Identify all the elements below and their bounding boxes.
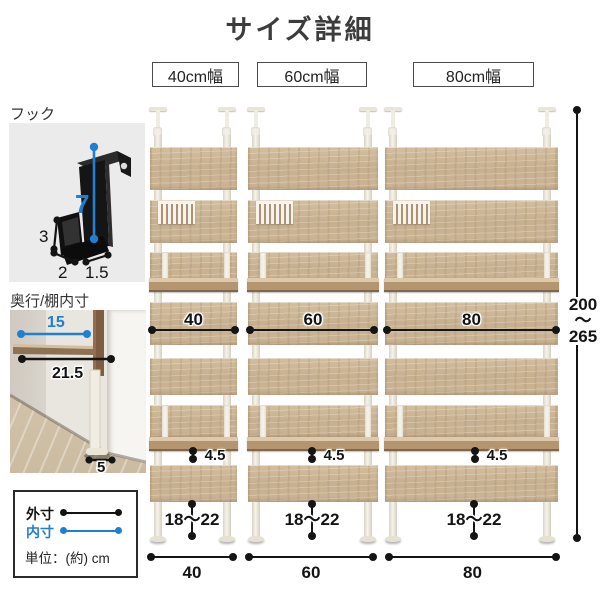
depth-inner-label: 15 — [47, 314, 65, 331]
wood-panel — [385, 465, 558, 502]
pole-foot — [219, 536, 235, 542]
depth-foot-label: 5 — [97, 459, 105, 473]
header-40cm: 40cm幅 — [152, 62, 239, 87]
inner-width-line — [248, 329, 376, 331]
hook-drawing: 7 3 2 1.5 — [9, 123, 145, 282]
depth-outer-label: 21.5 — [52, 365, 83, 382]
wood-panel — [248, 147, 378, 190]
outer-width-line — [149, 556, 235, 558]
header-60cm: 60cm幅 — [257, 62, 367, 87]
shelf-rail — [397, 405, 403, 438]
inner-width-label: 60 — [248, 311, 378, 328]
shelf-back-panel — [248, 405, 378, 437]
size-detail-diagram: サイズ詳細 40cm幅 60cm幅 80cm幅 フック 7 3 2 — [0, 0, 600, 600]
header-40cm-label: 40cm幅 — [168, 63, 223, 87]
wood-panel — [150, 147, 237, 190]
shelf-board — [247, 278, 379, 292]
outer-width-label: 40 — [149, 564, 235, 581]
depth-overlay: 15 21.5 5 — [10, 310, 146, 473]
wood-panel — [248, 358, 378, 395]
pole-foot — [539, 536, 555, 542]
header-80cm: 80cm幅 — [413, 62, 534, 87]
shelf-back-panel — [385, 405, 558, 437]
shelf-rail — [365, 405, 371, 438]
wood-panel — [385, 358, 558, 395]
shelf-gap-label: 4.5 — [201, 448, 229, 463]
legend-inner-line — [61, 530, 121, 532]
height-max: 265 — [560, 329, 600, 345]
shelf-gap-label: 4.5 — [483, 448, 511, 463]
wood-panel — [248, 465, 378, 502]
shelf-back-panel — [248, 252, 378, 281]
hook-width-label: 1.5 — [85, 263, 109, 282]
floor-gap-label: 18〜22 — [282, 511, 342, 528]
shelf-gap-label: 4.5 — [320, 448, 348, 463]
legend-unit-note: 単位：(約) cm — [25, 547, 133, 567]
pole-foot — [360, 536, 376, 542]
pole-foot — [150, 536, 166, 542]
legend-outer-line — [61, 512, 121, 514]
shelf-rail — [260, 405, 266, 438]
shelf-gap-line — [192, 449, 194, 461]
depth-section-label: 奥行/棚内寸 — [10, 290, 89, 311]
shelf-rail — [162, 405, 168, 438]
floor-gap-label: 18〜22 — [444, 511, 504, 528]
outer-width-line — [247, 556, 375, 558]
inner-width-label: 80 — [385, 311, 558, 328]
shelf-board — [149, 278, 238, 292]
outer-width-label: 60 — [247, 564, 375, 581]
pole-foot — [385, 536, 401, 542]
wood-panel — [150, 465, 237, 502]
shelf-back-panel — [385, 252, 558, 281]
floor-gap-label: 18〜22 — [162, 511, 222, 528]
pole-foot — [248, 536, 264, 542]
depth-photo: 15 21.5 5 — [10, 310, 146, 473]
shelf-gap-line — [474, 449, 476, 461]
legend-outer-label: 外寸 — [26, 504, 54, 524]
header-80cm-label: 80cm幅 — [446, 63, 501, 87]
hook-side-label: 3 — [39, 227, 48, 246]
outer-width-line — [387, 556, 558, 558]
outer-width-label: 80 — [387, 564, 558, 581]
height-range-label: 200 〜 265 — [560, 297, 600, 345]
hook-section-label: フック — [10, 103, 55, 124]
legend-inner-label: 内寸 — [26, 522, 54, 542]
inner-width-line — [385, 329, 558, 331]
shelf-rail — [544, 405, 550, 438]
wood-panel — [150, 358, 237, 395]
page-title: サイズ詳細 — [0, 8, 600, 47]
hook-height-label: 7 — [75, 189, 89, 219]
hook-depth-label: 2 — [58, 263, 67, 282]
hook-row — [158, 201, 195, 224]
hook-illustration: 7 3 2 1.5 — [9, 123, 145, 282]
shelf-board — [384, 278, 559, 292]
inner-width-label: 40 — [150, 311, 237, 328]
wood-panel — [385, 147, 558, 190]
hook-row — [256, 201, 293, 224]
hook-row — [393, 201, 430, 224]
shelf-gap-line — [311, 449, 313, 461]
legend-box: 外寸 内寸 単位：(約) cm — [13, 490, 138, 578]
shelf-rail — [224, 405, 230, 438]
header-60cm-label: 60cm幅 — [284, 63, 339, 87]
inner-width-line — [150, 329, 237, 331]
